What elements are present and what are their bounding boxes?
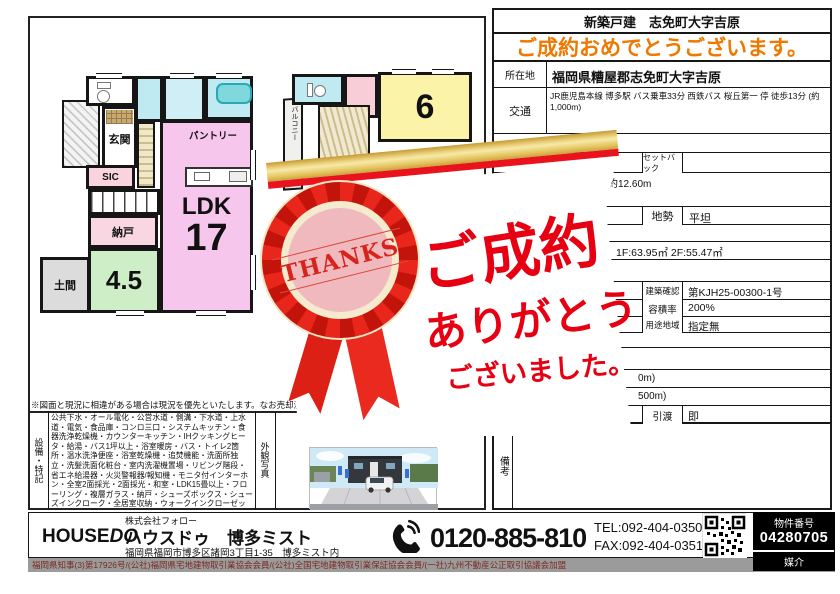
- equipment-text: 公共下水・オール電化・公営水道・側溝・下水道・上水道・電気・食品庫・コンロ三口・…: [51, 413, 253, 508]
- far-value: 200%: [688, 302, 715, 314]
- housedo-logo: HOUSEDO: [42, 526, 138, 548]
- qr-code: [702, 513, 746, 557]
- window: [432, 69, 454, 75]
- genkan-label: 玄関: [105, 131, 134, 147]
- bathroom-1f: [205, 76, 253, 120]
- disclaimer-note: ※図面と現況に相違がある場合は現況を優先といたします。なお売却済の場合: [31, 399, 311, 411]
- photo-box-divider: [275, 412, 276, 510]
- room6-2f: 6: [378, 72, 472, 142]
- terrain-value: 平坦: [689, 210, 711, 226]
- flyer: 玄関 SIC 納戸 4.5 土間 パントリー LDK 17 バルコニー: [0, 0, 840, 594]
- handover-value: 即: [688, 408, 699, 424]
- distance-fragment-2: 500m): [638, 391, 666, 402]
- phone-icon: [386, 519, 422, 553]
- road-fragment: 約12.60m: [608, 175, 651, 190]
- window: [392, 69, 416, 75]
- doma-label: 土間: [54, 277, 76, 293]
- doma-1f: 土間: [40, 257, 90, 313]
- property-number-box: 物件番号 04280705: [753, 512, 835, 550]
- kitchen-counter: [185, 167, 253, 187]
- toilet-room-1f: [86, 76, 135, 106]
- location-value: 福岡県糟屋郡志免町大字吉原: [552, 67, 721, 86]
- lavatory-1f: [163, 76, 205, 122]
- deal-type-label: 媒介: [784, 554, 804, 569]
- confirmation-value: 第KJH25-00300-1号: [688, 285, 783, 300]
- room6-size-label: 6: [416, 88, 435, 127]
- nando-label: 納戸: [112, 224, 134, 240]
- ldk-size-label: 17: [163, 219, 250, 257]
- window: [170, 73, 194, 79]
- license-bar: 福岡県知事(3)第17926号/(公社)福岡県宅地建物取引業協会会員/(公社)全…: [28, 558, 835, 572]
- exterior-photo: [309, 447, 437, 509]
- congrats-banner: ご成約おめでとうございます。: [494, 34, 830, 62]
- terrain-label: 地勢: [642, 207, 683, 225]
- office-address: 福岡県福岡市博多区諸岡3丁目1-35 博多ミスト内: [125, 545, 339, 559]
- remarks-label: 備考: [494, 424, 513, 508]
- window: [116, 310, 144, 316]
- genkan-tile: [106, 110, 133, 124]
- corridor-hatch-1f: [137, 122, 155, 188]
- equipment-list: 公共下水・オール電化・公営水道・側溝・下水道・上水道・電気・食品庫・コンロ三口・…: [51, 413, 253, 508]
- area-fragment: 1F:63.95㎡ 2F:55.47㎡: [616, 245, 723, 260]
- window: [216, 73, 242, 79]
- confirmation-label: 建築確認: [642, 282, 683, 300]
- ldk-label: LDK: [163, 195, 250, 219]
- handover-label: 引渡: [642, 406, 683, 424]
- stairs-1f: [88, 189, 160, 215]
- property-number-label: 物件番号: [753, 512, 835, 530]
- sic-1f: SIC: [86, 165, 135, 189]
- washroom-1f: [135, 76, 163, 122]
- row-location: 所在地 福岡県糟屋郡志免町大字吉原: [494, 62, 830, 88]
- license-text: 福岡県知事(3)第17926号/(公社)福岡県宅地建物取引業協会会員/(公社)全…: [28, 558, 835, 572]
- fax-number: FAX:092-404-0351: [594, 538, 703, 553]
- row-access: 交通 JR鹿児島本線 博多駅 バス乗車33分 西鉄バス 桜丘第一 停 徒歩13分…: [494, 88, 830, 134]
- balcony-label: バルコニー: [289, 106, 299, 142]
- zoning-value: 指定無: [688, 319, 720, 334]
- window: [250, 255, 256, 290]
- nando-1f: 納戸: [88, 215, 158, 248]
- ldk-1f: パントリー LDK 17: [160, 120, 253, 313]
- freedial-number: 0120-885-810: [430, 523, 586, 554]
- remarks-box: 備考: [494, 424, 830, 508]
- toilet-icon: [97, 82, 111, 100]
- photo-label: 外観写真: [256, 420, 274, 500]
- property-number-value: 04280705: [753, 530, 835, 546]
- location-label: 所在地: [494, 62, 547, 87]
- genkan-1f: 玄関: [102, 106, 137, 168]
- deal-type-box: 媒介: [753, 552, 835, 571]
- distance-fragment-1: 0m): [638, 373, 655, 384]
- far-label: 容積率: [642, 300, 683, 317]
- toilet-icon: [307, 79, 321, 97]
- rosette-center: THANKS: [288, 208, 392, 312]
- property-title-text: 新築戸建 志免町大字吉原: [584, 12, 740, 31]
- pantry-label: パントリー: [189, 128, 237, 142]
- tel-number: TEL:092-404-0350: [594, 520, 702, 535]
- property-title: 新築戸建 志免町大字吉原: [494, 10, 830, 34]
- congrats-text: ご成約おめでとうございます。: [516, 32, 808, 62]
- bathtub-icon: [216, 83, 252, 104]
- zoning-label: 用途地域: [642, 317, 683, 333]
- sic-label: SIC: [102, 172, 119, 183]
- washitsu-1f: 4.5: [88, 248, 160, 313]
- window: [250, 150, 256, 180]
- setback-label: セットバック: [642, 153, 683, 173]
- access-value: JR鹿児島本線 博多駅 バス乗車33分 西鉄バス 桜丘第一 停 徒歩13分 (約…: [550, 91, 826, 113]
- logo-house-text: HOUSE: [42, 526, 110, 547]
- equipment-label: 設備・特記: [30, 414, 48, 506]
- window: [196, 310, 226, 316]
- porch-1f: [62, 100, 100, 168]
- toilet-room-2f: [292, 74, 344, 105]
- window: [96, 73, 122, 79]
- equipment-box-divider: [48, 412, 49, 510]
- access-label: 交通: [494, 88, 547, 133]
- washitsu-size-label: 4.5: [106, 265, 142, 296]
